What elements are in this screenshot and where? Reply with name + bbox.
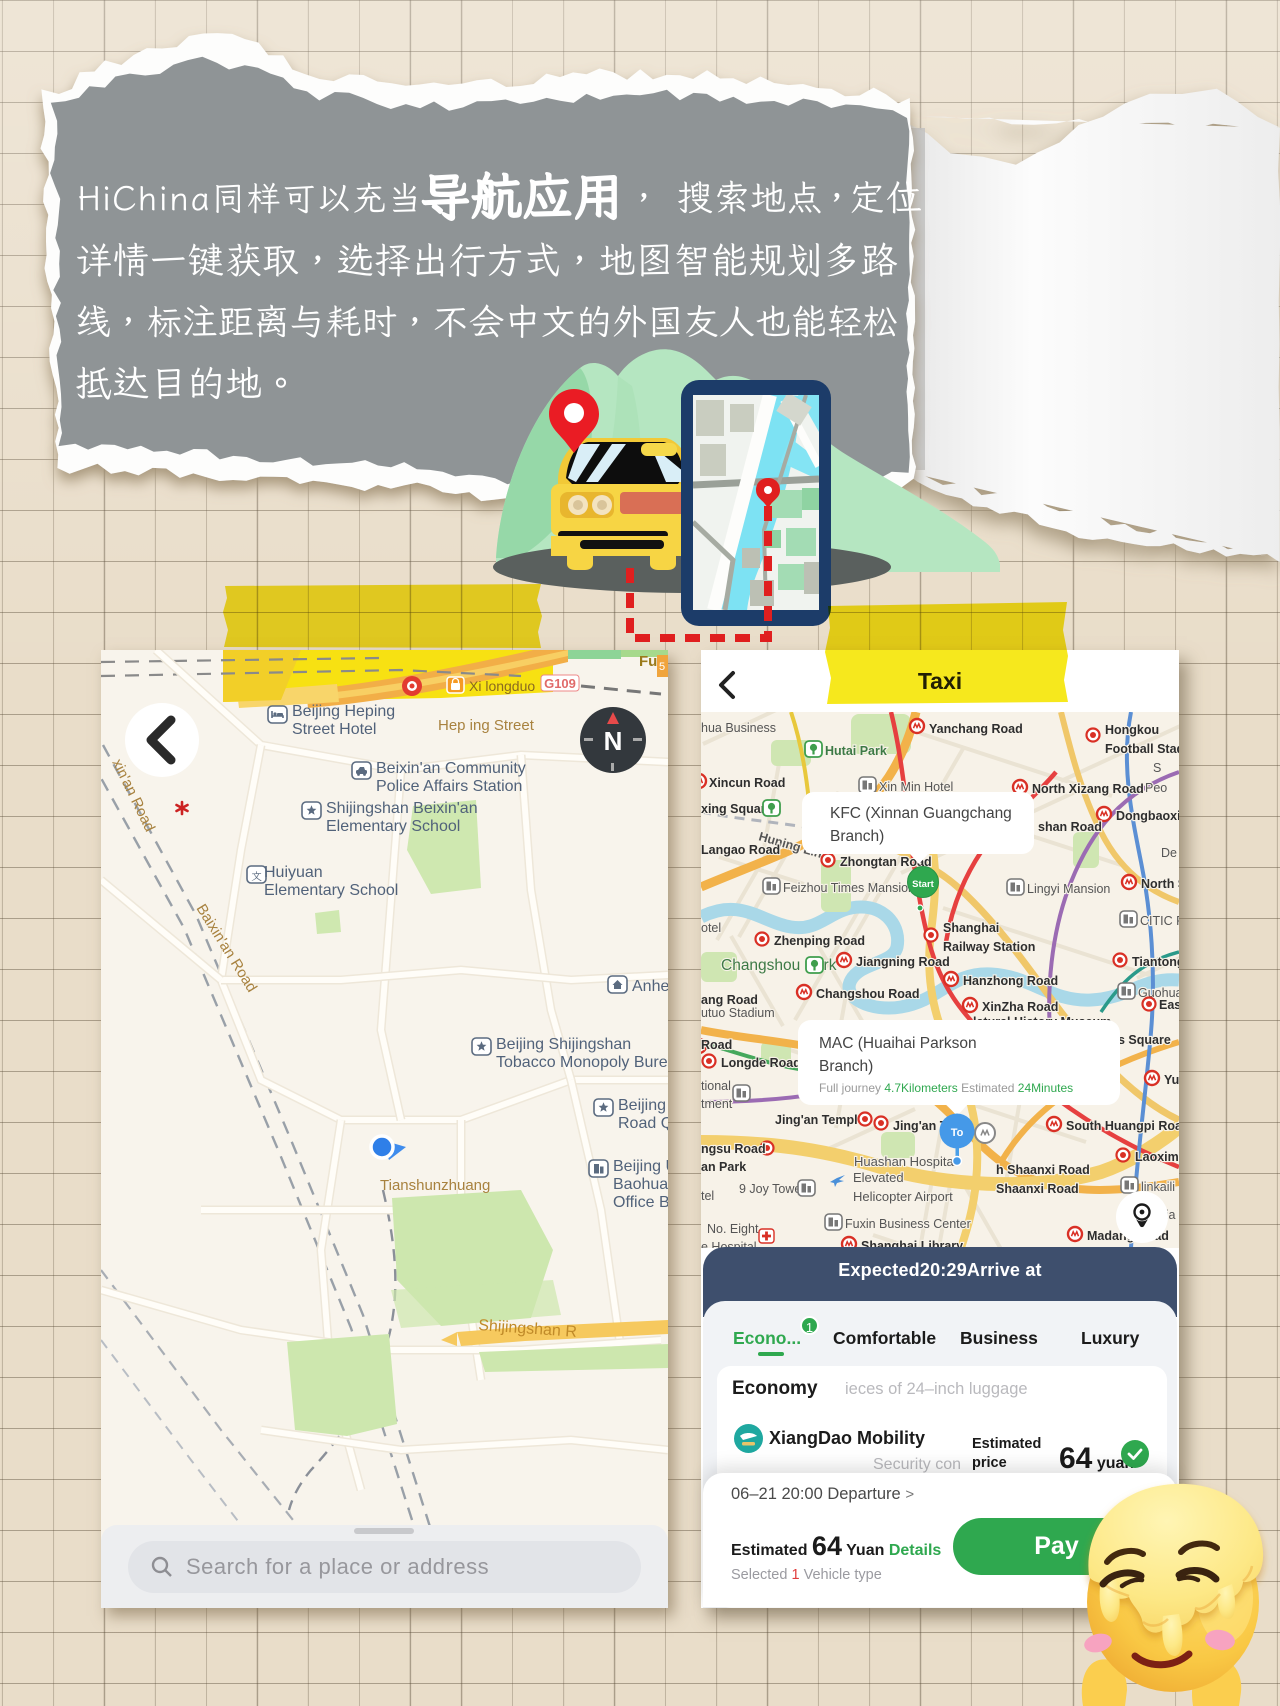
- svg-text:Road Qin: Road Qin: [618, 1115, 668, 1132]
- svg-text:Hutai Park: Hutai Park: [825, 744, 887, 758]
- svg-text:CITIC P: CITIC P: [1140, 914, 1179, 928]
- svg-text:MAC (Huaihai Parkson: MAC (Huaihai Parkson: [819, 1035, 977, 1052]
- svg-text:Dongbaoxir: Dongbaoxir: [1116, 809, 1179, 823]
- svg-text:KFC (Xinnan Guangchang: KFC (Xinnan Guangchang: [830, 805, 1012, 822]
- svg-text:Hongkou: Hongkou: [1105, 723, 1159, 737]
- svg-text:East N: East N: [1159, 998, 1179, 1012]
- svg-text:Office Bu: Office Bu: [613, 1194, 668, 1211]
- svg-text:Full journey 4.7Kilometers Est: Full journey 4.7Kilometers Estimated 24M…: [819, 1081, 1073, 1095]
- svg-text:Huashan Hospital: Huashan Hospital: [854, 1154, 957, 1169]
- svg-text:Road: Road: [701, 1038, 732, 1052]
- svg-text:Xi longduo: Xi longduo: [469, 678, 535, 694]
- svg-text:G109: G109: [544, 676, 576, 691]
- svg-text:Zhenping Road: Zhenping Road: [774, 934, 865, 948]
- svg-text:Fuxin Business Center: Fuxin Business Center: [845, 1217, 971, 1231]
- svg-text:Beijing Heping: Beijing Heping: [292, 703, 395, 720]
- svg-text:h Shaanxi Road: h Shaanxi Road: [996, 1163, 1090, 1177]
- svg-text:Longde Road: Longde Road: [721, 1056, 801, 1070]
- svg-text:De: De: [1161, 846, 1177, 860]
- svg-text:Branch): Branch): [830, 828, 884, 845]
- svg-text:Branch): Branch): [819, 1058, 873, 1075]
- svg-text:Railway Station: Railway Station: [943, 940, 1035, 954]
- svg-text:xing Square: xing Square: [701, 802, 773, 816]
- svg-text:Yanchang Road: Yanchang Road: [929, 722, 1023, 736]
- svg-text:otel: otel: [701, 921, 721, 935]
- svg-text:Huiyuan: Huiyuan: [264, 864, 323, 881]
- svg-text:Shijingshan Beixin'an: Shijingshan Beixin'an: [326, 800, 478, 817]
- svg-text:Laoxime: Laoxime: [1135, 1150, 1179, 1164]
- svg-text:Langao Road: Langao Road: [701, 843, 780, 857]
- svg-text:Beijing U: Beijing U: [613, 1158, 668, 1175]
- svg-text:Street Hotel: Street Hotel: [292, 721, 376, 738]
- svg-text:Elementary School: Elementary School: [326, 818, 460, 835]
- svg-text:Police Affairs Station: Police Affairs Station: [376, 778, 522, 795]
- svg-text:tment: tment: [701, 1097, 733, 1111]
- svg-text:Helicopter Airport: Helicopter Airport: [853, 1189, 953, 1204]
- svg-text:ngsu Road: ngsu Road: [701, 1142, 766, 1156]
- svg-text:Shaanxi Road: Shaanxi Road: [996, 1182, 1079, 1196]
- svg-text:Start: Start: [912, 879, 934, 890]
- svg-text:s Square: s Square: [1118, 1033, 1171, 1047]
- svg-text:No. Eight: No. Eight: [707, 1222, 759, 1236]
- svg-text:North S: North S: [1141, 877, 1179, 891]
- svg-text:shan Road: shan Road: [1038, 820, 1102, 834]
- svg-text:Xincun Road: Xincun Road: [709, 776, 785, 790]
- svg-text:utuo Stadium: utuo Stadium: [701, 1006, 775, 1020]
- svg-text:Tiantong: Tiantong: [1132, 955, 1179, 969]
- svg-text:Tobacco Monopoly Bureau: Tobacco Monopoly Bureau: [496, 1054, 668, 1071]
- svg-text:Beixin'an Community: Beixin'an Community: [376, 760, 526, 777]
- svg-text:Football Stad: Football Stad: [1105, 742, 1179, 756]
- svg-text:ang Road: ang Road: [701, 993, 758, 1007]
- svg-text:Beijing Shijingshan: Beijing Shijingshan: [496, 1036, 631, 1053]
- svg-text:N: N: [604, 726, 623, 756]
- svg-text:9 Joy Tower: 9 Joy Tower: [739, 1182, 805, 1196]
- svg-text:Hep ing Street: Hep ing Street: [438, 717, 535, 734]
- svg-text:Yu: Yu: [1164, 1073, 1179, 1087]
- svg-text:S: S: [1153, 761, 1161, 775]
- svg-text:Elevated: Elevated: [853, 1170, 904, 1185]
- svg-text:Jing'an Temple: Jing'an Temple: [775, 1113, 865, 1127]
- svg-text:XinZha Road: XinZha Road: [982, 1000, 1058, 1014]
- svg-text:Elementary School: Elementary School: [264, 882, 398, 899]
- svg-text:Jiangning Road: Jiangning Road: [856, 955, 950, 969]
- svg-text:Anhe U: Anhe U: [632, 978, 668, 995]
- svg-text:tional: tional: [701, 1079, 731, 1093]
- svg-text:5: 5: [659, 661, 665, 673]
- svg-text:tel: tel: [701, 1189, 714, 1203]
- svg-text:Feizhou Times Mansion: Feizhou Times Mansion: [783, 881, 915, 895]
- svg-text:Lingyi Mansion: Lingyi Mansion: [1027, 882, 1110, 896]
- svg-text:To: To: [951, 1127, 964, 1139]
- svg-text:Hanzhong Road: Hanzhong Road: [963, 974, 1058, 988]
- svg-text:an Park: an Park: [701, 1160, 746, 1174]
- svg-text:hua Business: hua Business: [701, 721, 776, 735]
- svg-text:Beijing S: Beijing S: [618, 1097, 668, 1114]
- svg-text:Xin Min Hotel: Xin Min Hotel: [879, 780, 953, 794]
- svg-text:Shanghai: Shanghai: [943, 921, 999, 935]
- svg-text:Tianshunzhuang: Tianshunzhuang: [380, 1177, 490, 1194]
- svg-text:South Huangpi Road: South Huangpi Road: [1066, 1119, 1179, 1133]
- svg-text:Changshou Road: Changshou Road: [816, 987, 919, 1001]
- svg-text:Peo: Peo: [1145, 781, 1167, 795]
- svg-text:North Xizang Road: North Xizang Road: [1032, 782, 1144, 796]
- svg-text:Baohua C: Baohua C: [613, 1176, 668, 1193]
